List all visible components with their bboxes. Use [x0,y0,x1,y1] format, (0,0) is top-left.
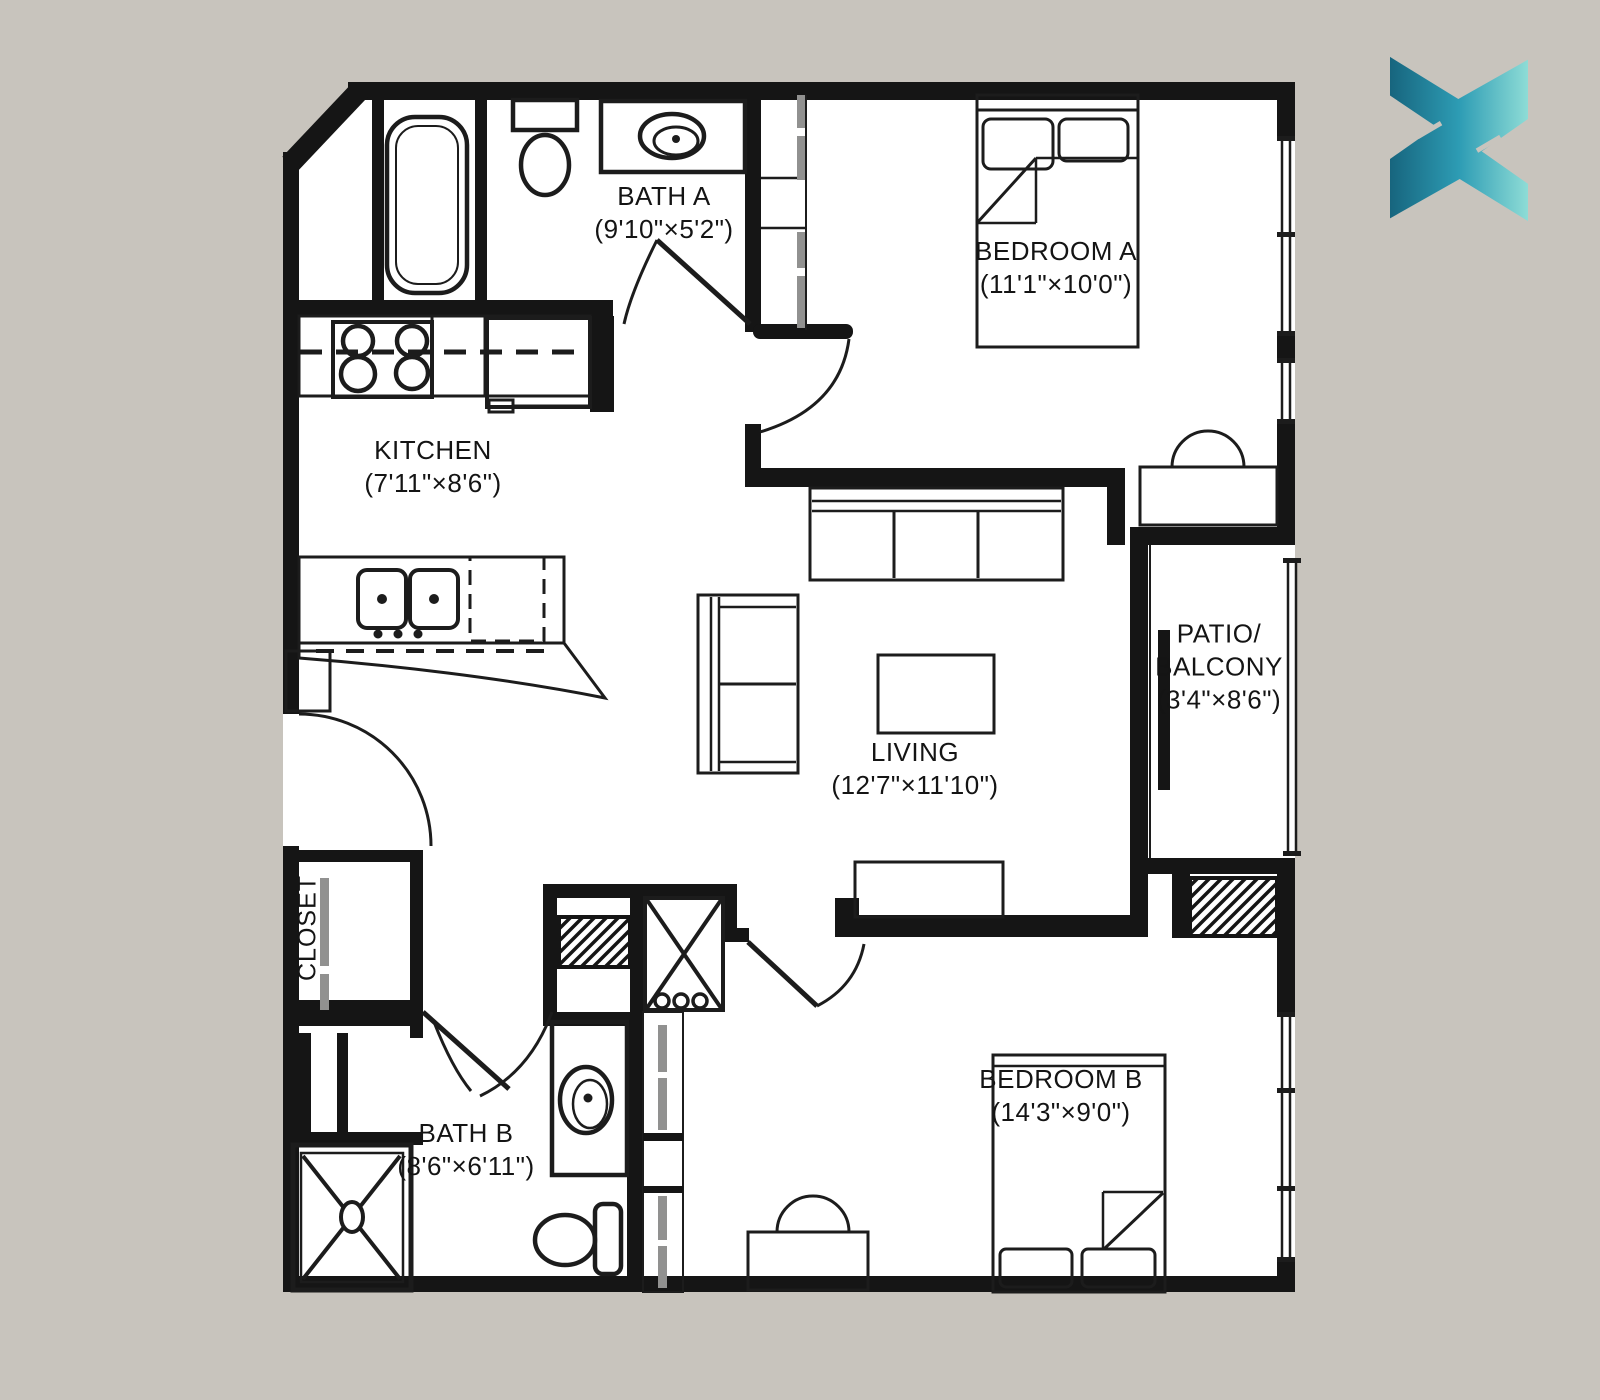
room-name: KITCHEN [374,434,492,467]
room-label-bedroom-a: BEDROOM A (11'1"×10'0") [975,235,1137,301]
room-name: BALCONY [1155,651,1283,684]
room-name: BATH B [419,1117,514,1150]
room-name: PATIO/ [1177,618,1261,651]
mechanical-hatched [559,917,630,967]
room-dims: (7'11"×8'6") [364,467,501,500]
room-label-bedroom-b: BEDROOM B (14'3"×9'0") [979,1063,1142,1129]
room-label-closet: CLOSET [292,875,325,981]
room-label-bath-b: BATH B (8'6"×6'11") [397,1117,534,1183]
room-name: BEDROOM A [975,235,1137,268]
room-name: CLOSET [292,875,325,981]
room-label-bath-a: BATH A (9'10"×5'2") [594,180,733,246]
room-dims: (8'6"×6'11") [397,1150,534,1183]
room-dims: (14'3"×9'0") [991,1096,1130,1129]
floor-plan-drawing [0,0,1600,1400]
x-logo-icon [1390,54,1528,224]
room-label-patio-balcony: PATIO/ BALCONY (3'4"×8'6") [1155,618,1283,717]
room-name: BATH A [617,180,711,213]
room-name: LIVING [871,736,959,769]
room-name: BEDROOM B [979,1063,1142,1096]
room-label-kitchen: KITCHEN (7'11"×8'6") [364,434,501,500]
floor-plan-page: BATH A (9'10"×5'2") BEDROOM A (11'1"×10'… [0,0,1600,1400]
room-dims: (11'1"×10'0") [980,268,1132,301]
room-dims: (3'4"×8'6") [1157,684,1281,717]
room-dims: (12'7"×11'10") [831,769,998,802]
patio-hatched-box [1190,878,1277,936]
room-dims: (9'10"×5'2") [594,213,733,246]
room-label-living: LIVING (12'7"×11'10") [831,736,998,802]
